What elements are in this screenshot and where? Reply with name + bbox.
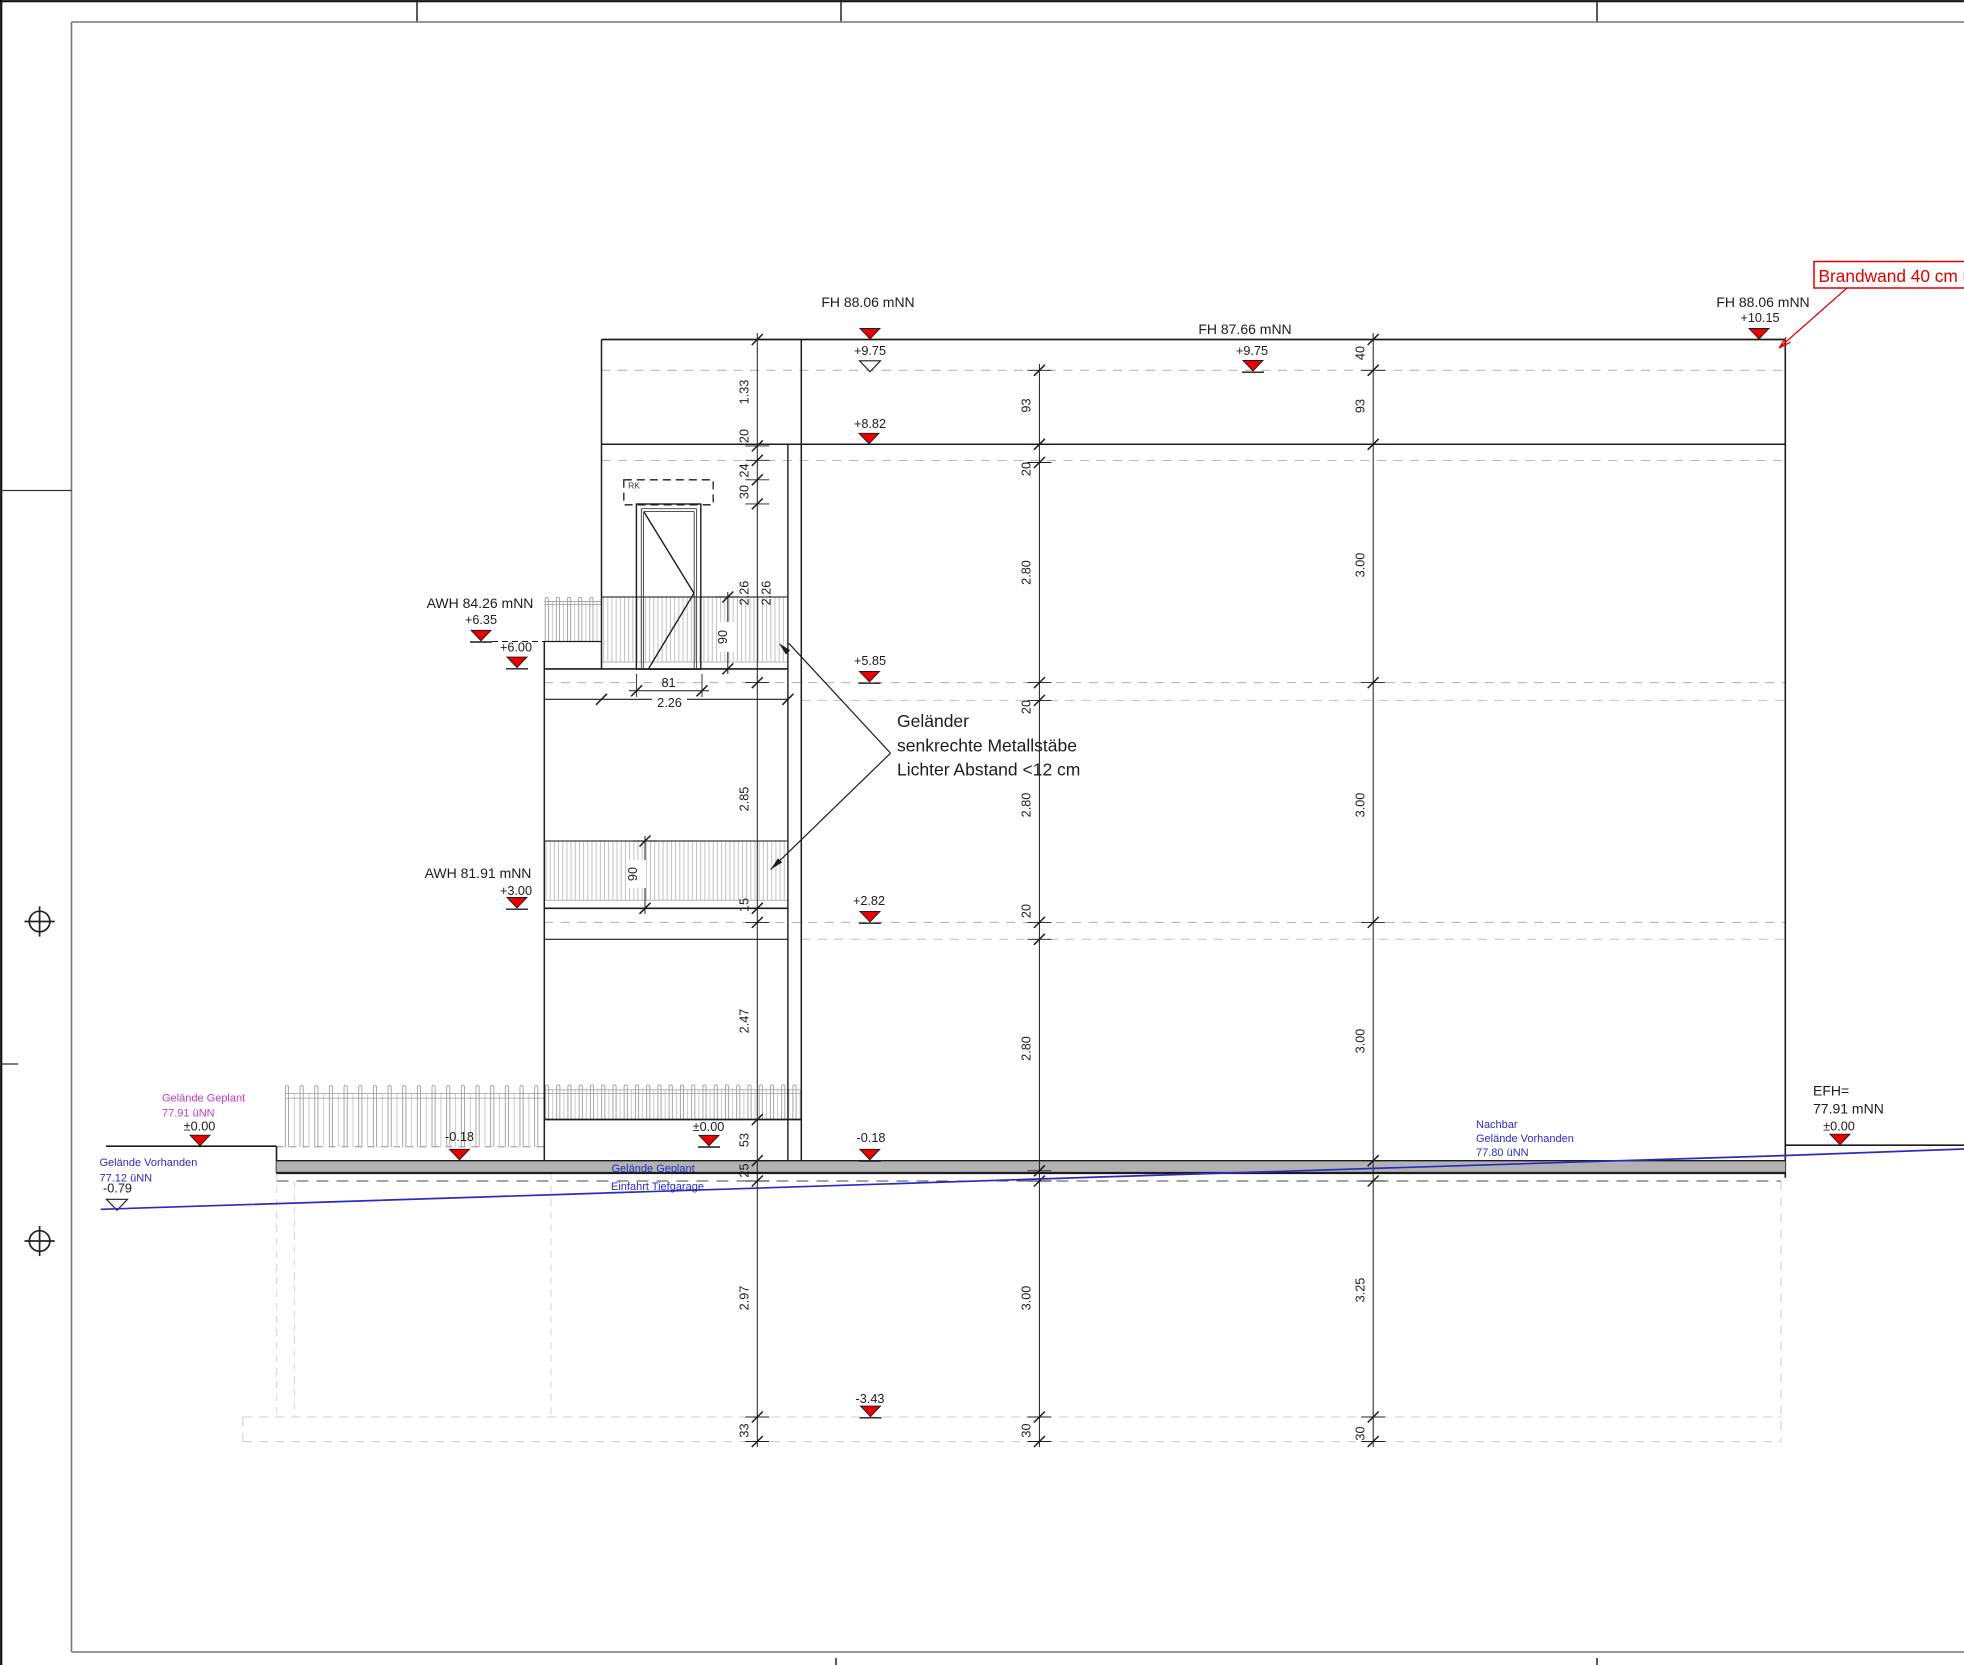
svg-text:+5.85: +5.85 — [854, 654, 886, 668]
svg-text:77.80 üNN: 77.80 üNN — [1476, 1147, 1529, 1159]
svg-text:AWH 84.26 mNN: AWH 84.26 mNN — [427, 595, 534, 611]
svg-text:+2.82: +2.82 — [853, 894, 885, 908]
svg-text:-0.18: -0.18 — [857, 1131, 886, 1145]
svg-text:+10.15: +10.15 — [1740, 311, 1779, 325]
svg-text:20: 20 — [1020, 700, 1034, 714]
svg-text:25: 25 — [738, 1163, 752, 1177]
svg-text:93: 93 — [1354, 399, 1368, 413]
svg-text:FH 87.66 mNN: FH 87.66 mNN — [1198, 321, 1291, 337]
svg-text:Gelände Vorhanden: Gelände Vorhanden — [1476, 1133, 1574, 1145]
svg-text:2.26: 2.26 — [657, 696, 682, 710]
svg-text:-3.43: -3.43 — [856, 1392, 885, 1406]
svg-text:-0.18: -0.18 — [445, 1130, 474, 1144]
svg-text:EFH=: EFH= — [1813, 1083, 1849, 1099]
svg-text:2.97: 2.97 — [738, 1286, 752, 1311]
svg-text:81: 81 — [661, 676, 675, 690]
svg-text:±0.00: ±0.00 — [184, 1120, 216, 1134]
svg-text:2.47: 2.47 — [738, 1009, 752, 1034]
svg-text:20: 20 — [1020, 904, 1034, 918]
svg-text:±0.00: ±0.00 — [1823, 1120, 1855, 1134]
svg-text:93: 93 — [1020, 398, 1034, 412]
svg-text:15: 15 — [738, 898, 752, 912]
svg-text:+9.75: +9.75 — [854, 344, 886, 358]
svg-text:Gelände Geplant: Gelände Geplant — [612, 1163, 695, 1175]
svg-text:3.00: 3.00 — [1354, 793, 1368, 818]
svg-text:77.91 mNN: 77.91 mNN — [1813, 1101, 1884, 1117]
svg-text:+6.00: +6.00 — [500, 641, 532, 655]
svg-text:1.33: 1.33 — [738, 380, 752, 405]
svg-text:77.91 üNN: 77.91 üNN — [162, 1108, 215, 1120]
svg-text:3.00: 3.00 — [1354, 553, 1368, 578]
svg-text:24: 24 — [738, 463, 752, 477]
svg-text:3.00: 3.00 — [1020, 1286, 1034, 1311]
svg-text:90: 90 — [626, 867, 640, 881]
svg-text:2.26: 2.26 — [760, 581, 774, 606]
svg-text:+8.82: +8.82 — [854, 417, 886, 431]
svg-text:±0.00: ±0.00 — [693, 1120, 725, 1134]
svg-text:Brandwand 40 cm ü: Brandwand 40 cm ü — [1819, 266, 1964, 286]
svg-text:30: 30 — [1020, 1423, 1034, 1437]
svg-text:33: 33 — [738, 1423, 752, 1437]
svg-text:3.25: 3.25 — [1354, 1278, 1368, 1303]
svg-text:30: 30 — [738, 485, 752, 499]
svg-text:Nachbar: Nachbar — [1476, 1119, 1518, 1131]
svg-text:2.80: 2.80 — [1020, 793, 1034, 818]
svg-text:40: 40 — [1354, 346, 1368, 360]
svg-text:30: 30 — [1354, 1426, 1368, 1440]
svg-text:FH 88.06 mNN: FH 88.06 mNN — [1716, 294, 1809, 310]
svg-text:AWH 81.91 mNN: AWH 81.91 mNN — [425, 865, 532, 881]
svg-text:+6.35: +6.35 — [465, 613, 497, 627]
svg-text:2.80: 2.80 — [1020, 560, 1034, 585]
svg-text:senkrechte Metallstäbe: senkrechte Metallstäbe — [897, 736, 1077, 756]
svg-text:Gelände Geplant: Gelände Geplant — [162, 1093, 245, 1105]
svg-text:RK: RK — [628, 481, 640, 491]
svg-text:Geländer: Geländer — [897, 711, 969, 731]
svg-text:-0.79: -0.79 — [103, 1182, 132, 1196]
svg-text:2.80: 2.80 — [1020, 1036, 1034, 1061]
svg-text:20: 20 — [1020, 462, 1034, 476]
svg-text:Gelände Vorhanden: Gelände Vorhanden — [100, 1157, 198, 1169]
svg-text:90: 90 — [716, 630, 730, 644]
svg-text:2.26: 2.26 — [738, 581, 752, 606]
svg-text:2.85: 2.85 — [738, 787, 752, 812]
svg-text:FH 88.06 mNN: FH 88.06 mNN — [821, 294, 914, 310]
svg-text:+3.00: +3.00 — [500, 884, 532, 898]
svg-text:Lichter Abstand <12 cm: Lichter Abstand <12 cm — [897, 760, 1080, 780]
svg-text:20: 20 — [738, 429, 752, 443]
svg-text:+9.75: +9.75 — [1236, 344, 1268, 358]
svg-text:3.00: 3.00 — [1354, 1029, 1368, 1054]
svg-text:53: 53 — [738, 1133, 752, 1147]
